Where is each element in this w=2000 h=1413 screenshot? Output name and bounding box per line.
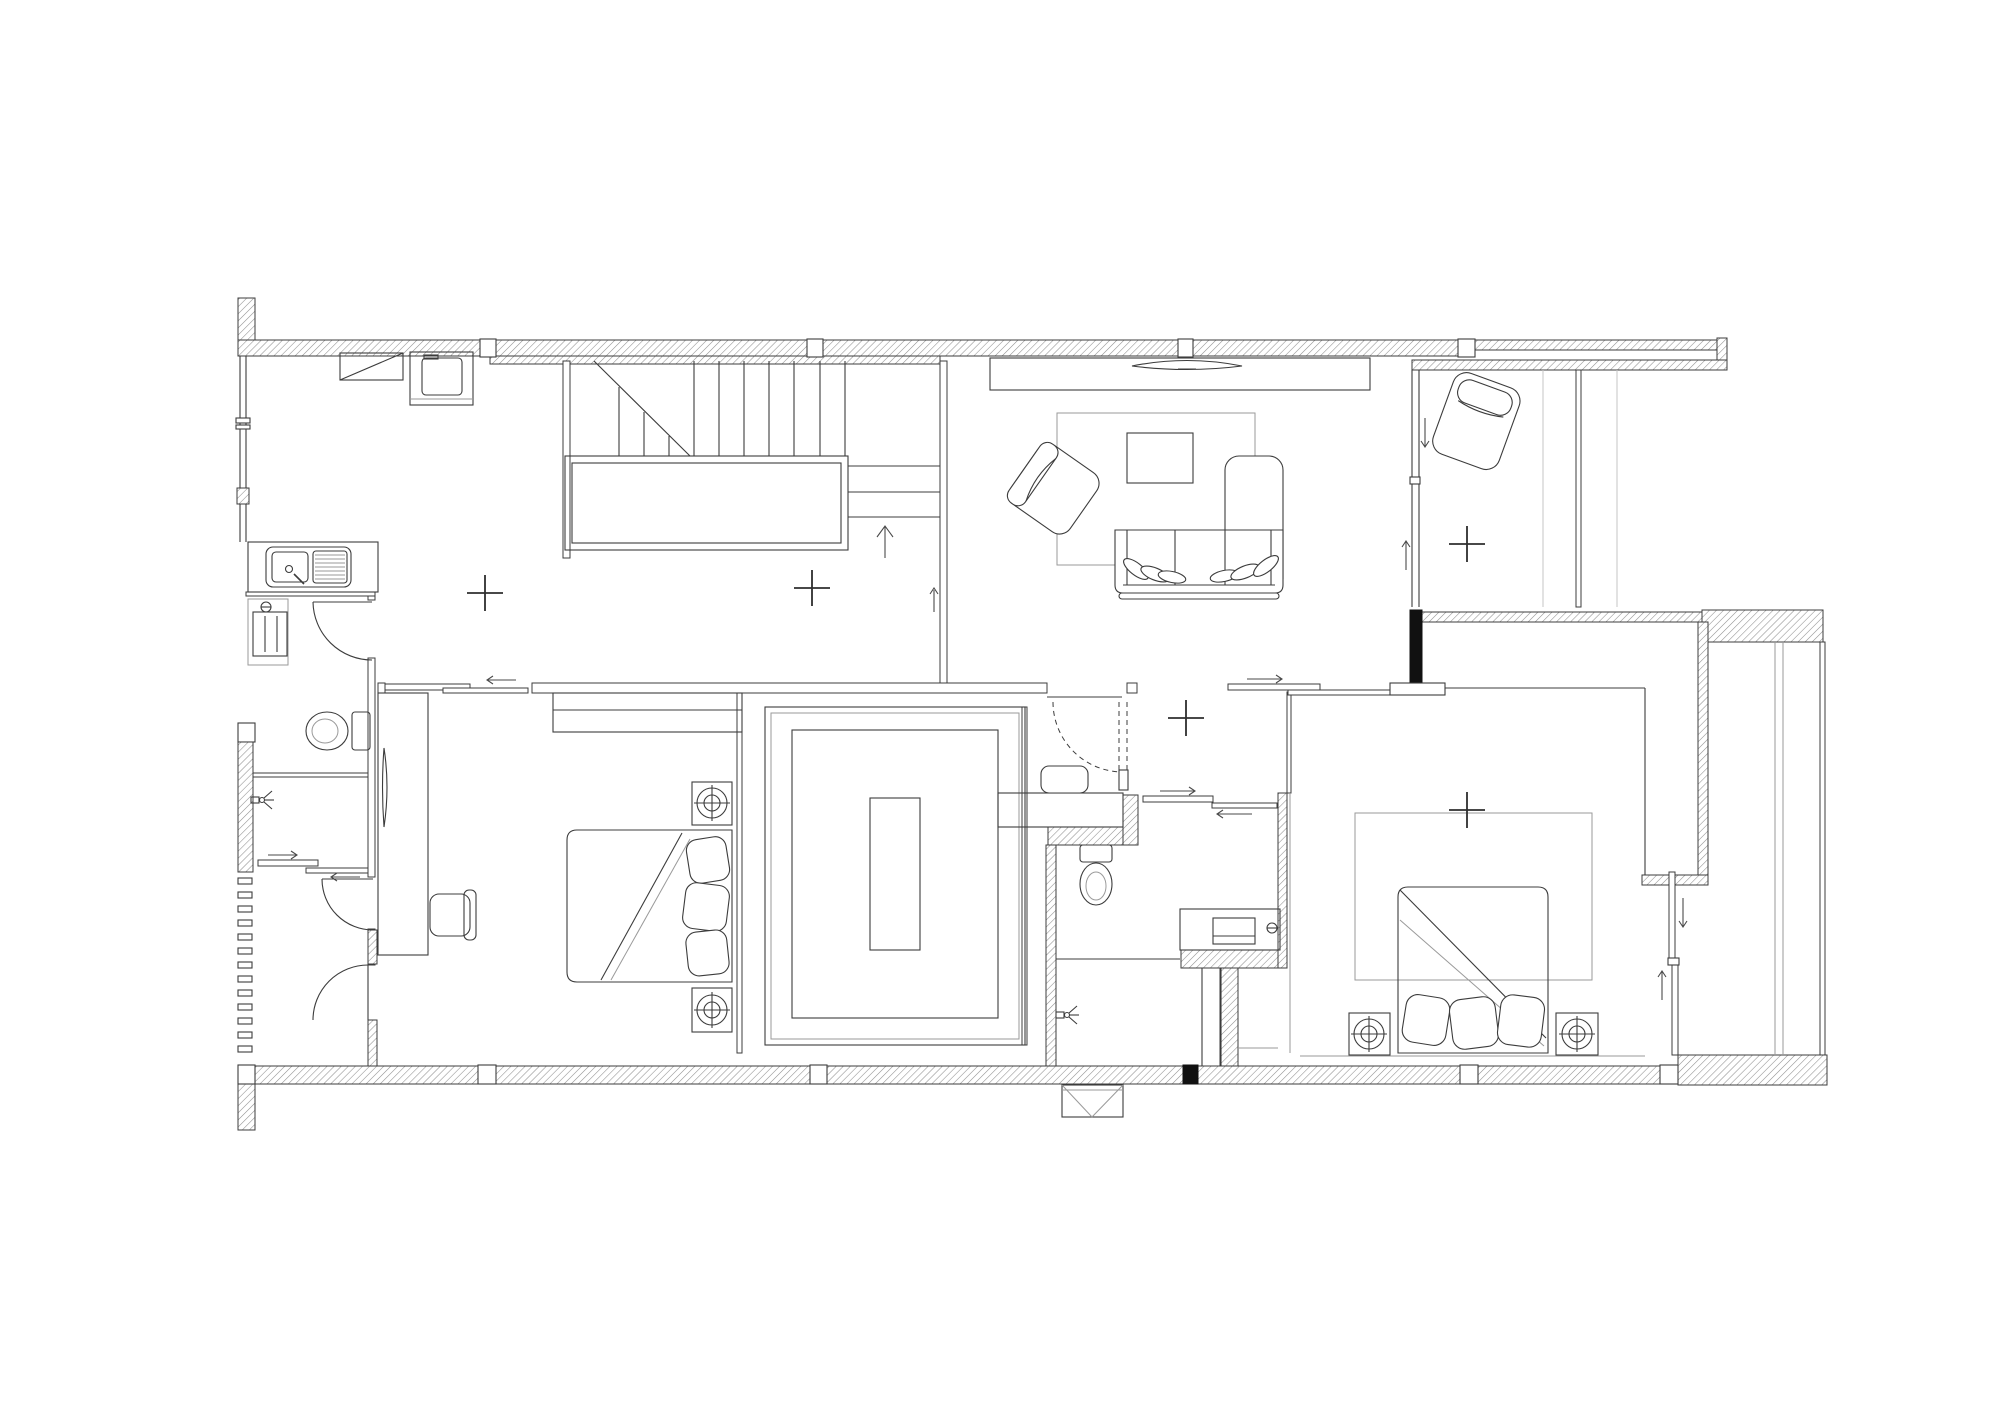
shower-head-1-icon xyxy=(251,791,274,809)
family-room xyxy=(1402,369,1524,607)
bed1-pillows xyxy=(681,835,731,977)
exterior-walls xyxy=(238,298,1827,1130)
top-right-upper-band xyxy=(1475,340,1727,350)
armchair xyxy=(1004,439,1104,539)
nightstand-lamp-1b xyxy=(692,988,732,1032)
right-vertical-wall xyxy=(1698,622,1708,885)
shower2-post xyxy=(1220,968,1238,1066)
center-mark-icon xyxy=(1449,526,1485,562)
shower1-wall xyxy=(238,742,253,872)
bedroom2-entry-sliding-door xyxy=(1143,787,1277,818)
vestibule-right-wall xyxy=(1287,692,1291,793)
stair-wall-arrow xyxy=(930,588,938,612)
bedroom2-rug xyxy=(1355,813,1592,980)
foyer-door-lower xyxy=(313,965,368,1020)
stair-top-wall-strip xyxy=(490,356,940,364)
center-marks xyxy=(467,526,1485,828)
nightstand-lamp-2b xyxy=(1556,1013,1598,1055)
kitchen xyxy=(248,352,473,592)
stair-upper-flight xyxy=(594,361,845,456)
wardrobe-bedroom1 xyxy=(553,693,742,732)
family-sliding-partition xyxy=(1402,370,1429,607)
stair-lower-flight xyxy=(848,466,940,517)
bedroom1-sliding-door xyxy=(385,676,528,693)
washing-machine xyxy=(253,612,287,656)
left-wall-column xyxy=(238,723,255,742)
bathroom-1 xyxy=(248,599,373,1020)
black-column-family-corner xyxy=(1410,610,1422,683)
tv xyxy=(1132,361,1242,370)
washer-alcove xyxy=(248,599,288,665)
stair-right-wall xyxy=(940,361,947,683)
shower-head-2-icon xyxy=(1056,1006,1079,1024)
walk-in-closet xyxy=(765,707,1025,1045)
sofa-base xyxy=(1119,593,1279,599)
dressing-nook-wall xyxy=(1181,950,1280,968)
vanity-sink xyxy=(1041,766,1088,793)
door-pocket xyxy=(1390,683,1445,695)
bedroom-1 xyxy=(378,676,742,1032)
toilet-2 xyxy=(1080,845,1112,905)
closet-inner xyxy=(792,730,998,1018)
shaft-bottom-wall xyxy=(1678,1055,1827,1085)
left-strip-partition xyxy=(368,595,377,1066)
foyer-door-upper xyxy=(322,879,373,930)
sink-counter xyxy=(248,542,378,592)
bath2-left-wall xyxy=(1046,845,1056,1066)
right-corner-block xyxy=(1702,610,1823,642)
family-room-bottom-wall xyxy=(1412,612,1708,622)
stair-up-arrow xyxy=(877,526,893,558)
desk-counter xyxy=(378,693,428,955)
closet-outer xyxy=(765,707,1025,1045)
closet-outer-inner-line xyxy=(771,713,1019,1039)
stair-left-wall xyxy=(563,361,570,558)
living-room xyxy=(990,358,1445,695)
cooktop xyxy=(340,353,403,380)
nightstand-lamp-1a xyxy=(692,782,732,825)
sofa xyxy=(1115,456,1283,599)
black-column xyxy=(1183,1065,1198,1084)
coffee-table xyxy=(1127,433,1193,483)
stair-landing-inner xyxy=(572,463,841,543)
toilet-1 xyxy=(306,712,370,750)
family-room-top-wall xyxy=(1412,360,1727,370)
bath1-sliding-door xyxy=(258,851,368,881)
bed2-pillows xyxy=(1401,993,1546,1051)
louver-window xyxy=(238,878,252,1052)
left-window-wall xyxy=(236,356,250,542)
bath2-l-wall-vertical xyxy=(1123,795,1138,845)
dressing-table xyxy=(1180,909,1280,950)
bottom-wall xyxy=(255,1066,1660,1084)
vanity-counter xyxy=(998,766,1123,827)
center-mark-icon xyxy=(1168,700,1204,736)
service-shaft xyxy=(1775,642,1825,1055)
bottom-left-pier xyxy=(238,1084,255,1130)
bedroom2-west-wall xyxy=(1278,793,1287,968)
bath1-door xyxy=(313,602,372,660)
nightstand-lamp-2a xyxy=(1349,1013,1390,1055)
door-stop xyxy=(1119,770,1128,790)
staircase xyxy=(565,361,940,612)
lounge-chair xyxy=(1429,369,1524,474)
bed-2 xyxy=(1398,887,1548,1053)
center-mark-icon xyxy=(794,570,830,606)
center-mark-icon xyxy=(1449,792,1485,828)
desk-chair xyxy=(430,890,476,940)
top-wall xyxy=(238,340,1475,356)
floor-plan-drawing xyxy=(0,0,2000,1413)
bath1-counter-wall xyxy=(246,592,375,596)
tv-console xyxy=(990,358,1370,390)
center-mark-icon xyxy=(467,575,503,611)
bedroom1-closet-wall xyxy=(737,693,742,1053)
stair-landing xyxy=(565,456,848,550)
oven-unit xyxy=(410,352,473,405)
bath2-l-wall-horizontal xyxy=(1048,827,1123,845)
vent-box xyxy=(1062,1085,1123,1117)
family-partition-tracks xyxy=(1543,370,1617,607)
bath1-divider xyxy=(253,773,368,777)
floor-plan-page xyxy=(0,0,2000,1413)
closet-island xyxy=(870,798,920,950)
balcony-sliding-door xyxy=(1658,872,1687,1055)
top-left-pier xyxy=(238,298,255,340)
bed-1 xyxy=(567,830,732,982)
